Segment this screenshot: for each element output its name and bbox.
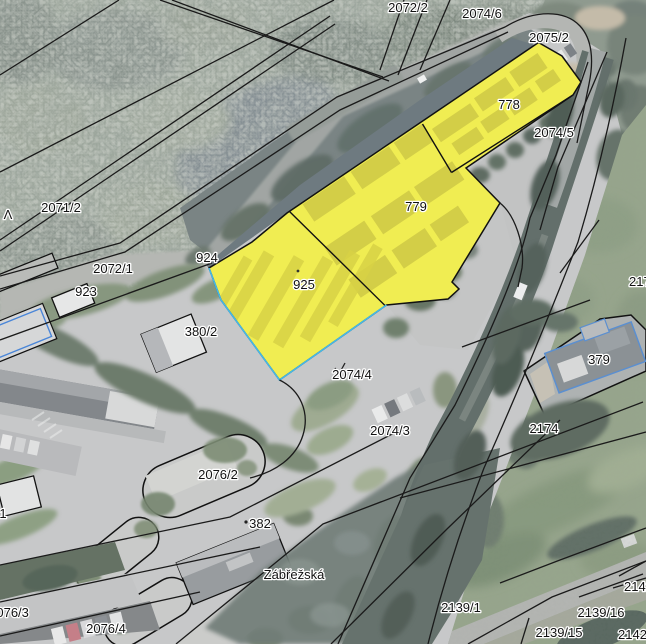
svg-text:2174: 2174	[530, 421, 559, 436]
svg-text:2074/3: 2074/3	[370, 423, 410, 438]
svg-text:Zábřežská: Zábřežská	[264, 567, 325, 582]
svg-text:379: 379	[588, 352, 610, 367]
svg-text:2071/2: 2071/2	[41, 200, 81, 215]
svg-text:2074/5: 2074/5	[534, 125, 574, 140]
svg-text:2171: 2171	[629, 274, 646, 289]
svg-text:2072/1: 2072/1	[93, 261, 133, 276]
svg-text:779: 779	[405, 199, 427, 214]
svg-text:778: 778	[498, 97, 520, 112]
svg-text:2139/16: 2139/16	[578, 605, 625, 620]
svg-text:1: 1	[0, 506, 7, 521]
svg-text:2072/2: 2072/2	[388, 0, 428, 15]
svg-text:2074/6: 2074/6	[462, 6, 502, 21]
svg-text:924: 924	[196, 250, 218, 265]
svg-text:2076/3: 2076/3	[0, 605, 29, 620]
svg-text:Λ: Λ	[4, 207, 13, 222]
svg-text:380/2: 380/2	[185, 324, 218, 339]
svg-text:2074/4: 2074/4	[332, 367, 372, 382]
svg-text:2142/2: 2142/2	[624, 579, 646, 594]
svg-text:2076/4: 2076/4	[86, 621, 126, 636]
svg-text:2142/4: 2142/4	[618, 627, 646, 642]
svg-text:2075/2: 2075/2	[529, 30, 569, 45]
svg-text:925: 925	[293, 277, 315, 292]
svg-text:923: 923	[75, 284, 97, 299]
svg-text:2139/1: 2139/1	[441, 600, 481, 615]
svg-text:382: 382	[249, 516, 271, 531]
svg-text:2139/15: 2139/15	[536, 625, 583, 640]
svg-text:2076/2: 2076/2	[198, 467, 238, 482]
